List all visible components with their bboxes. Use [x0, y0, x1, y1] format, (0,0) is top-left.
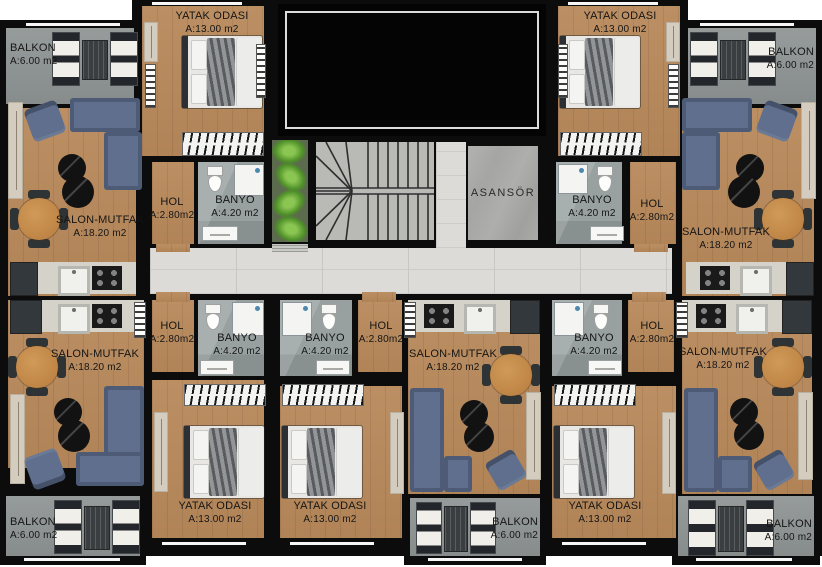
sofa [718, 456, 752, 492]
wardrobe [184, 384, 266, 406]
room-area: A:2.80m2 [142, 209, 202, 222]
stairs [316, 142, 434, 240]
stove [92, 266, 122, 290]
room-name: HOL [142, 320, 202, 333]
dining-chair [28, 239, 50, 248]
sofa [682, 98, 752, 132]
door-opening [156, 244, 190, 252]
room-area: A:18.20 m2 [393, 361, 513, 374]
room-name: YATAK ODASI [545, 500, 665, 513]
door-opening [634, 244, 668, 252]
label-bottom-left-hall: HOLA:2.80m2 [142, 320, 202, 346]
coffee-table [58, 420, 90, 452]
room-name: YATAK ODASI [155, 500, 275, 513]
sofa [104, 386, 144, 462]
bed [182, 36, 262, 108]
tv-unit [798, 392, 813, 480]
room-area: A:2.80m2 [622, 333, 682, 346]
lounge-chair [112, 500, 140, 554]
label-top-right-balcony: BALKONA:6.00 m2 [752, 46, 814, 72]
coffee-table [464, 422, 494, 452]
sofa [410, 388, 444, 492]
label-bottom-middle-balcony: BALKONA:6.00 m2 [476, 516, 538, 542]
room-area: A:18.20 m2 [35, 361, 155, 374]
dining-chair [772, 387, 794, 396]
dining-chair [803, 208, 812, 230]
window [700, 23, 794, 26]
dining-chair [803, 356, 812, 378]
window [568, 2, 658, 5]
shower [554, 302, 584, 336]
room-name: BANYO [195, 194, 275, 207]
fridge [510, 300, 540, 334]
stove [92, 304, 122, 328]
sofa [70, 98, 140, 132]
room-area: A:6.00 m2 [750, 531, 812, 544]
sofa [682, 132, 720, 190]
lounge-chair [690, 32, 718, 86]
toilet [596, 166, 614, 192]
radiator [145, 64, 156, 108]
shower [558, 164, 588, 194]
room-name: HOL [142, 196, 202, 209]
room-area: A:6.00 m2 [10, 529, 57, 542]
radiator [558, 44, 568, 98]
dining-chair [26, 387, 48, 396]
lounge-chair [54, 500, 82, 554]
fridge [10, 300, 42, 334]
room-name: BALKON [752, 46, 814, 59]
radiator [668, 64, 679, 108]
label-bottom-left-balcony: BALKONA:6.00 m2 [10, 516, 57, 542]
room-name: YATAK ODASI [270, 500, 390, 513]
label-bottom-right-living: SALON-MUTFAKA:18.20 m2 [663, 346, 783, 372]
planter [272, 244, 308, 252]
room-name: SALON-MUTFAK [35, 348, 155, 361]
room-area: A:18.20 m2 [666, 239, 786, 252]
kitchen-sink [58, 304, 90, 334]
room-area: A:13.00 m2 [545, 513, 665, 526]
bed [282, 426, 362, 498]
bed [184, 426, 264, 498]
window [152, 2, 242, 5]
tv-unit [8, 102, 23, 199]
radiator [256, 44, 266, 98]
room-area: A:18.20 m2 [663, 359, 783, 372]
room-area: A:2.80m2 [351, 333, 411, 346]
room-area: A:13.00 m2 [270, 513, 390, 526]
tv-unit [801, 102, 816, 199]
light-shaft-border [285, 11, 539, 129]
fridge [782, 300, 812, 334]
balcony-table [82, 40, 108, 80]
label-top-right-bathroom: BANYOA:4.20 m2 [552, 194, 632, 220]
dining-chair [531, 364, 540, 386]
room-name: HOL [351, 320, 411, 333]
corridor [150, 248, 672, 294]
room-area: A:4.20 m2 [554, 345, 634, 358]
window [428, 558, 522, 561]
room-name: BANYO [552, 194, 632, 207]
window [162, 542, 246, 545]
room-name: SALON-MUTFAK [393, 348, 513, 361]
sofa [444, 456, 472, 492]
tv-unit [10, 394, 25, 484]
sofa [684, 388, 718, 492]
label-bottom-right-hall: HOLA:2.80m2 [622, 320, 682, 346]
plant-leaf-icon [272, 140, 306, 164]
room-area: A:4.20 m2 [197, 345, 277, 358]
label-bottom-right-balcony: BALKONA:6.00 m2 [750, 518, 812, 544]
lounge-chair [110, 32, 138, 86]
shower [232, 302, 264, 336]
wardrobe [182, 132, 264, 156]
room-area: A:4.20 m2 [552, 207, 632, 220]
window [290, 542, 374, 545]
dining-chair [500, 395, 522, 404]
room-name: HOL [622, 320, 682, 333]
door-opening [362, 292, 396, 302]
stove [424, 304, 454, 328]
room-area: A:13.00 m2 [155, 513, 275, 526]
toilet [592, 304, 610, 330]
label-bottom-left-bathroom: BANYOA:4.20 m2 [197, 332, 277, 358]
elevator: ASANSÖR [468, 146, 538, 240]
washbasin [588, 360, 622, 375]
door-opening [156, 292, 190, 302]
floor-plan: ASANSÖR [0, 0, 822, 567]
room-name: BALKON [750, 518, 812, 531]
tv-unit [526, 392, 541, 480]
label-top-right-bedroom: YATAK ODASIA:13.00 m2 [560, 10, 680, 36]
label-bottom-middle-living: SALON-MUTFAKA:18.20 m2 [393, 348, 513, 374]
closet [662, 412, 676, 494]
label-top-left-bathroom: BANYOA:4.20 m2 [195, 194, 275, 220]
coffee-table [734, 420, 764, 450]
elevator-label: ASANSÖR [471, 187, 535, 199]
room-area: A:2.80m2 [142, 333, 202, 346]
label-bottom-left-bedroom: YATAK ODASIA:13.00 m2 [155, 500, 275, 526]
room-area: A:13.00 m2 [560, 23, 680, 36]
wardrobe [554, 384, 636, 406]
shower [234, 164, 264, 196]
wardrobe [282, 384, 364, 406]
coffee-table [728, 176, 760, 208]
lounge-chair [416, 502, 442, 554]
label-top-left-hall: HOLA:2.80m2 [142, 196, 202, 222]
room-name: YATAK ODASI [152, 10, 272, 23]
toilet [206, 166, 224, 192]
label-bottom-middle-bedroom: YATAK ODASIA:13.00 m2 [270, 500, 390, 526]
washbasin [590, 226, 624, 241]
window [26, 23, 120, 26]
fridge [786, 262, 814, 296]
label-top-left-balcony: BALKONA:6.00 m2 [10, 42, 57, 68]
kitchen-sink [464, 304, 496, 334]
closet [154, 412, 168, 492]
kitchen-sink [740, 266, 772, 296]
label-bottom-middle-hall: HOLA:2.80m2 [351, 320, 411, 346]
balcony-table [718, 506, 744, 552]
room-name: YATAK ODASI [560, 10, 680, 23]
room-area: A:4.20 m2 [285, 345, 365, 358]
sofa [76, 452, 144, 486]
bed [554, 426, 634, 498]
stove [696, 304, 726, 328]
room-name: SALON-MUTFAK [666, 226, 786, 239]
balcony-table [720, 40, 746, 80]
label-bottom-left-living: SALON-MUTFAKA:18.20 m2 [35, 348, 155, 374]
window [562, 542, 646, 545]
fridge [10, 262, 38, 296]
washbasin [316, 360, 350, 375]
room-area: A:13.00 m2 [152, 23, 272, 36]
toilet [320, 304, 338, 330]
balcony-table [84, 506, 110, 550]
plants [272, 140, 308, 242]
room-area: A:6.00 m2 [476, 529, 538, 542]
room-area: A:18.20 m2 [40, 227, 160, 240]
coffee-table [62, 176, 94, 208]
lounge-chair [688, 500, 716, 556]
room-area: A:6.00 m2 [10, 55, 57, 68]
washbasin [200, 360, 234, 375]
label-top-right-living: SALON-MUTFAKA:18.20 m2 [666, 226, 786, 252]
room-name: BANYO [197, 332, 277, 345]
core-landing [436, 142, 466, 248]
room-area: A:4.20 m2 [195, 207, 275, 220]
shower [282, 302, 312, 336]
toilet [204, 304, 222, 330]
kitchen-sink [58, 266, 90, 296]
room-area: A:6.00 m2 [752, 59, 814, 72]
room-name: SALON-MUTFAK [663, 346, 783, 359]
label-bottom-right-bedroom: YATAK ODASIA:13.00 m2 [545, 500, 665, 526]
stove [700, 266, 730, 290]
room-name: BALKON [476, 516, 538, 529]
bed [560, 36, 640, 108]
washbasin [202, 226, 238, 241]
kitchen-sink [736, 304, 768, 334]
light-shaft [278, 4, 546, 136]
label-top-left-bedroom: YATAK ODASIA:13.00 m2 [152, 10, 272, 36]
door-opening [632, 292, 666, 302]
window [24, 558, 120, 561]
wardrobe [560, 132, 642, 156]
room-name: BALKON [10, 42, 57, 55]
balcony-table [444, 506, 468, 552]
room-name: BALKON [10, 516, 57, 529]
window [696, 558, 792, 561]
closet [390, 412, 404, 494]
sofa [104, 132, 142, 190]
